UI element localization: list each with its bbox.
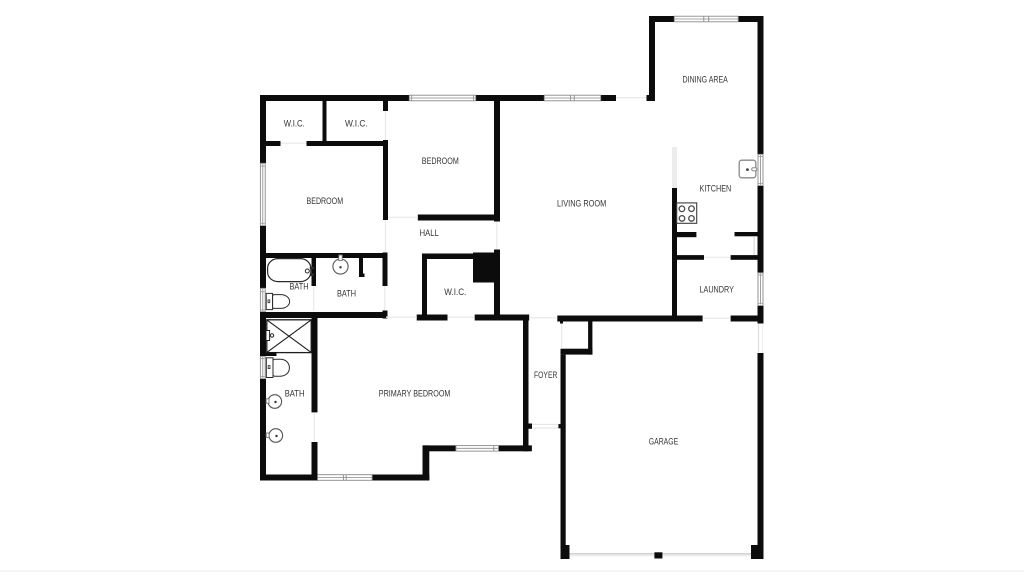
svg-text:W.I.C.: W.I.C. xyxy=(345,118,368,128)
svg-text:GARAGE: GARAGE xyxy=(649,437,678,447)
svg-text:BATH: BATH xyxy=(285,389,305,399)
svg-text:HALL: HALL xyxy=(420,228,439,238)
svg-text:BEDROOM: BEDROOM xyxy=(422,156,459,166)
svg-text:BATH: BATH xyxy=(290,282,309,292)
svg-text:FOYER: FOYER xyxy=(534,370,558,380)
svg-text:DINING AREA: DINING AREA xyxy=(683,75,728,85)
svg-text:PRIMARY BEDROOM: PRIMARY BEDROOM xyxy=(379,388,451,398)
svg-text:BEDROOM: BEDROOM xyxy=(307,196,344,206)
svg-text:KITCHEN: KITCHEN xyxy=(700,184,732,194)
svg-text:LAUNDRY: LAUNDRY xyxy=(700,285,734,295)
svg-text:LIVING ROOM: LIVING ROOM xyxy=(557,199,606,209)
svg-text:BATH: BATH xyxy=(337,289,356,299)
svg-text:W.I.C.: W.I.C. xyxy=(444,287,466,297)
svg-text:W.I.C.: W.I.C. xyxy=(284,118,305,128)
